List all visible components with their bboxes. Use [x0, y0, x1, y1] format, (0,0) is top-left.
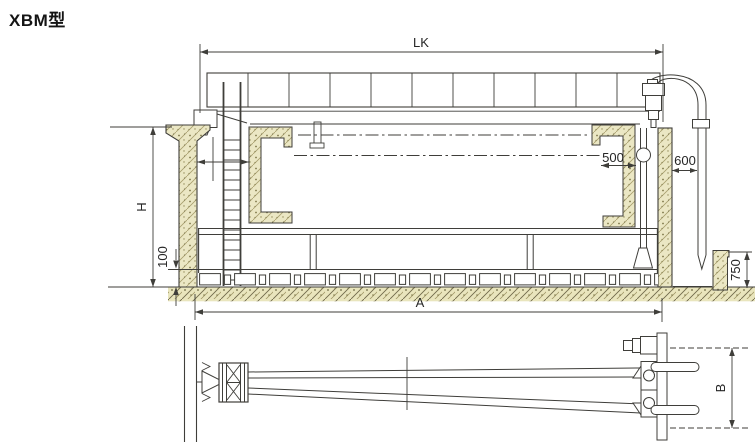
- sludge-suction-pipe: [634, 128, 653, 268]
- shaft-step-small: [624, 341, 633, 351]
- dim-600: 600: [672, 153, 697, 173]
- pipe-coupling: [693, 120, 710, 129]
- drive-assembly: [624, 333, 700, 440]
- axle-beam: [657, 333, 667, 440]
- floor-support-blocks: [199, 273, 658, 286]
- label-model-type: XBM型: [9, 6, 66, 31]
- dim-750: 750: [728, 252, 752, 288]
- dim-label-100: 100: [155, 246, 170, 268]
- lk-dimension: LK: [200, 35, 663, 122]
- dim-label-b: B: [713, 384, 728, 393]
- plan-view: B: [185, 326, 749, 442]
- dim-label-600: 600: [674, 153, 696, 168]
- walkway-bridge: [207, 73, 660, 111]
- scum-baffle-bracket: [314, 122, 321, 144]
- access-ladder: [224, 82, 241, 286]
- scraper-blade-top: [651, 363, 699, 372]
- technical-drawing: LK H 100: [0, 0, 755, 444]
- wheel-top: [644, 370, 655, 381]
- water-level-lines: [250, 124, 640, 156]
- shaft-step-medium: [633, 339, 641, 353]
- left-wall: [166, 125, 210, 287]
- plan-wall: [185, 326, 197, 442]
- dim-label-750: 750: [728, 259, 743, 281]
- right-effluent-trough: [592, 125, 635, 227]
- drawing-sheet: XBM型: [0, 0, 755, 444]
- shaft-step-large: [641, 337, 658, 355]
- scraper-carriage: [219, 363, 248, 402]
- dim-label-a: A: [416, 295, 425, 310]
- suction-nozzle: [197, 363, 220, 402]
- dim-label-h: H: [134, 202, 149, 211]
- pump-unit: [643, 75, 710, 269]
- b-dimension: B: [670, 348, 748, 428]
- discharge-pipe-tip: [698, 255, 706, 269]
- dim-label-500: 500: [602, 150, 624, 165]
- guide-rails: [248, 357, 641, 413]
- scraper-blade-bottom: [651, 406, 699, 415]
- left-effluent-trough: [249, 122, 324, 223]
- bell-mouth: [634, 248, 653, 268]
- dim-label-lk: LK: [413, 35, 429, 50]
- cross-section-view: LK H 100: [108, 35, 755, 322]
- right-wall: [658, 128, 672, 287]
- bottom-scraper-beam: [198, 229, 658, 274]
- sludge-pit-outer-wall: [713, 251, 729, 291]
